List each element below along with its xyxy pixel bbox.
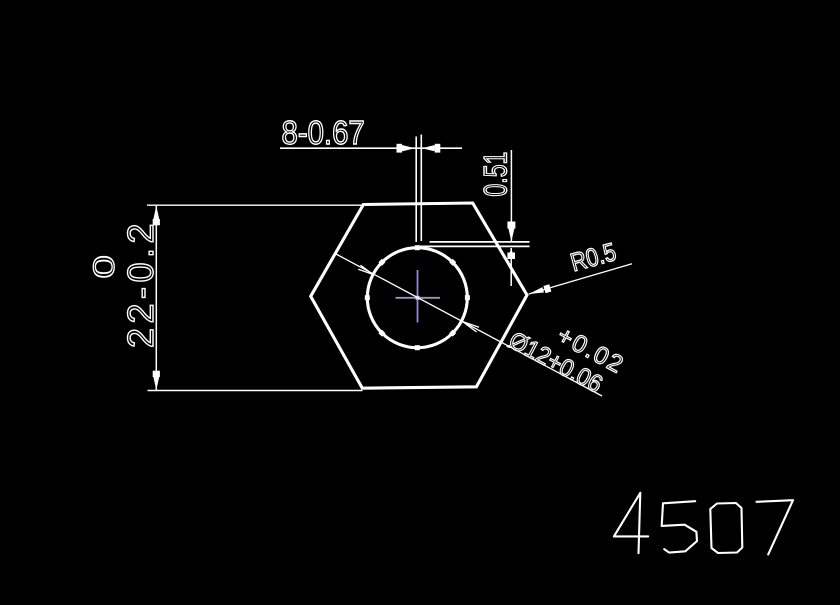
- svg-text:22-0.2: 22-0.2: [120, 219, 161, 348]
- svg-text:0: 0: [87, 255, 121, 278]
- svg-text:0.51: 0.51: [478, 152, 514, 197]
- svg-text:8-0.67: 8-0.67: [282, 115, 365, 152]
